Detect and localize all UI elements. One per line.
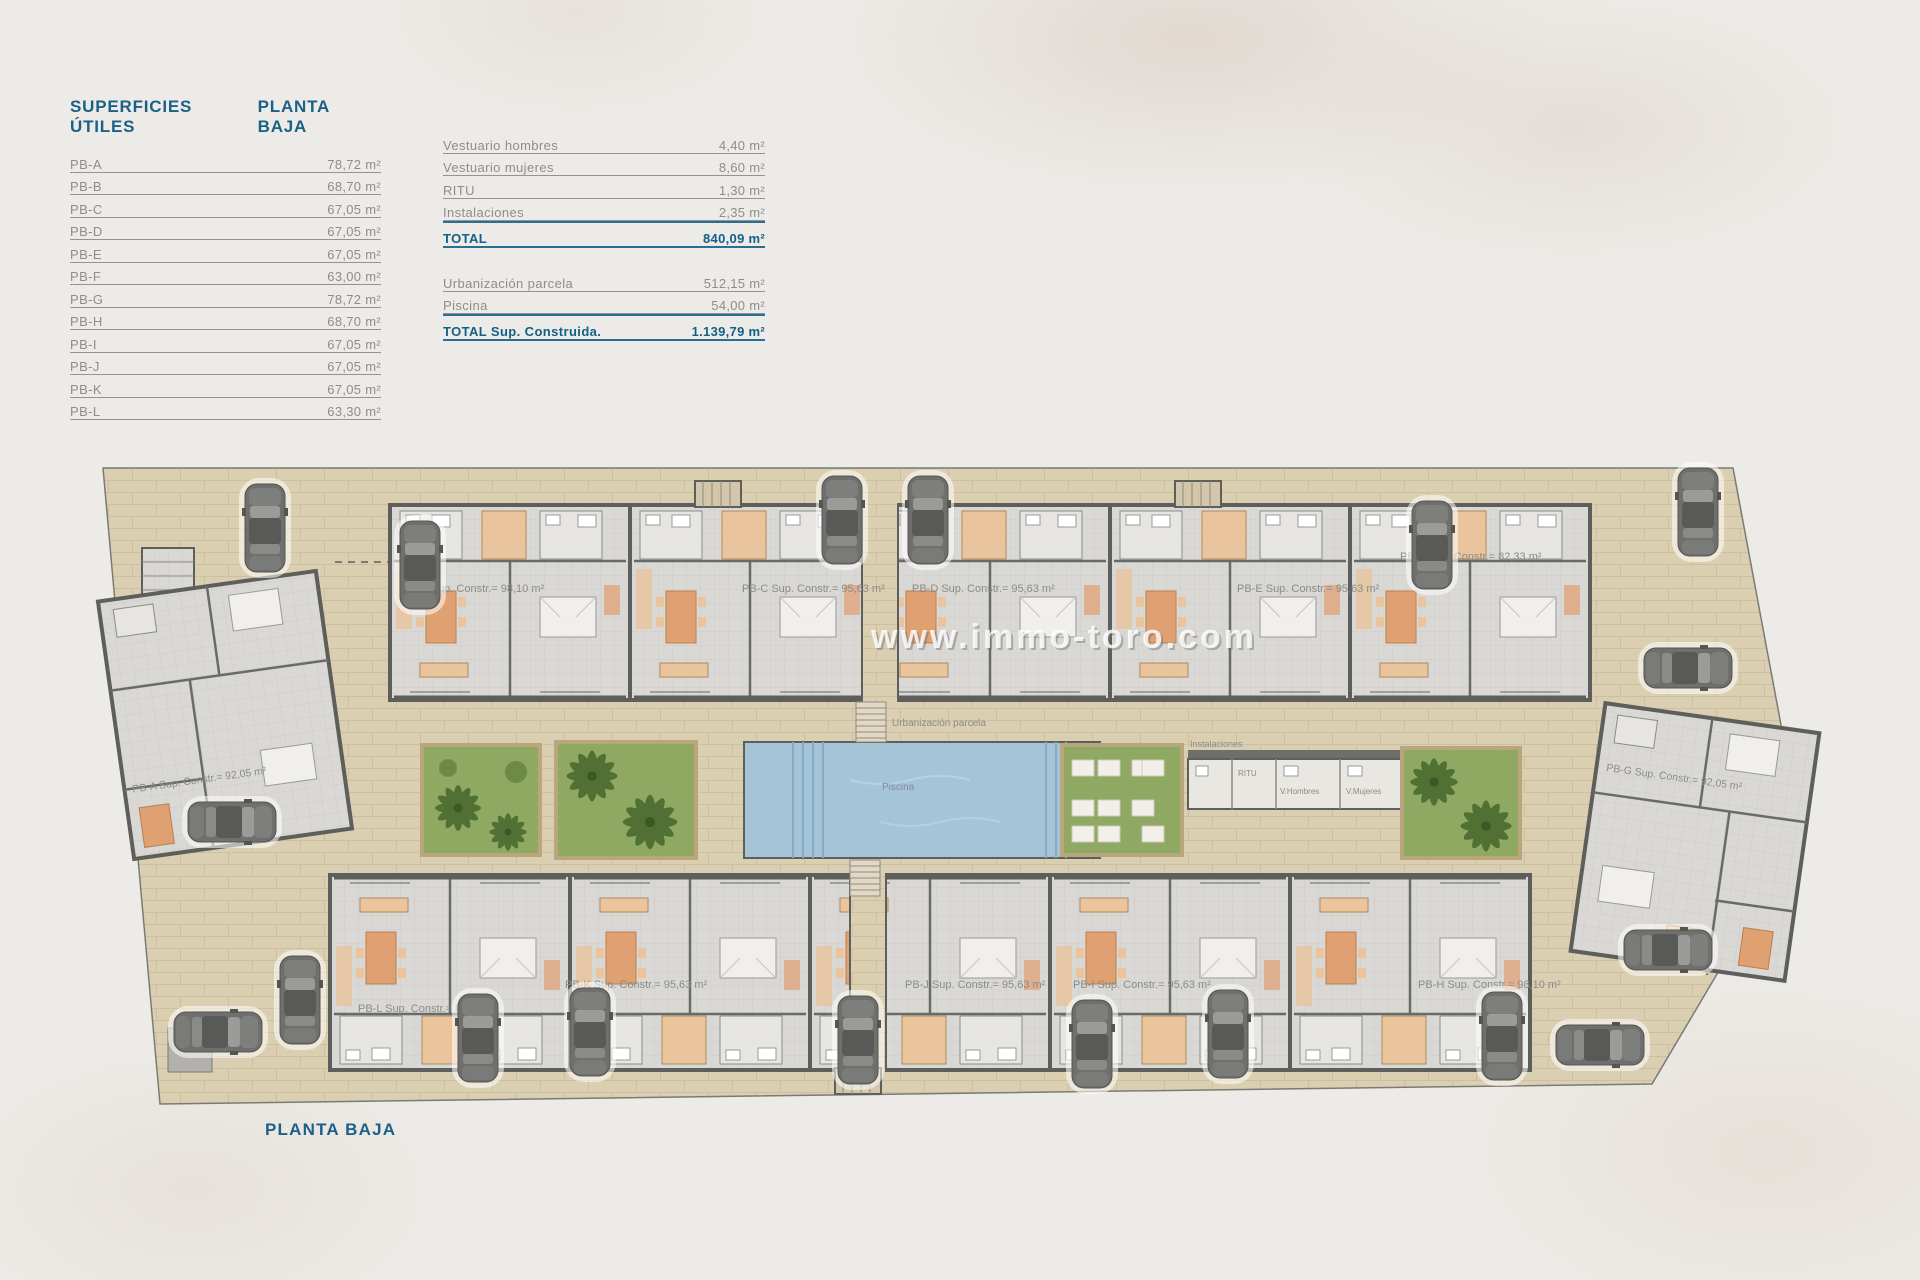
pergola xyxy=(1062,745,1182,855)
unit-label-pb-d: PB-D Sup. Constr.= 95,63 m² xyxy=(912,583,1055,595)
lawn-1 xyxy=(422,745,540,855)
car xyxy=(274,950,326,1050)
pool-label: Piscina xyxy=(882,782,915,793)
lawn-4 xyxy=(1402,748,1520,858)
unit-label-pb-e: PB-E Sup. Constr.= 95,63 m² xyxy=(1237,583,1379,595)
car xyxy=(832,990,884,1090)
pool: Piscina xyxy=(744,742,1100,858)
surfaces-subtitle: PLANTA BAJA xyxy=(258,97,381,137)
surfaces-table: SUPERFICIES ÚTILES PLANTA BAJA PB-A78,72… xyxy=(70,97,381,420)
summary-total-row: TOTAL Sup. Construida.1.139,79 m² xyxy=(443,314,765,341)
vestuario-hombres-label: V.Hombres xyxy=(1280,787,1319,796)
car xyxy=(902,470,954,570)
summary-row: Vestuario hombres4,40 m² xyxy=(443,131,765,154)
watermark: www.immo-toro.com xyxy=(870,618,1257,656)
car xyxy=(1638,642,1738,694)
surface-row: PB-F63,00 m² xyxy=(70,263,381,286)
vestuario-mujeres-label: V.Mujeres xyxy=(1346,787,1381,796)
car xyxy=(182,796,282,848)
car xyxy=(1202,984,1254,1084)
summary-table: Vestuario hombres4,40 m² Vestuario mujer… xyxy=(443,131,765,341)
car xyxy=(452,988,504,1088)
surface-row: PB-I67,05 m² xyxy=(70,330,381,353)
unit-label-pb-i: PB-I Sup. Constr.= 95,63 m² xyxy=(1073,979,1211,991)
surface-row: PB-D67,05 m² xyxy=(70,218,381,241)
surface-row: PB-H68,70 m² xyxy=(70,308,381,331)
unit-label-pb-c: PB-C Sup. Constr.= 95,63 m² xyxy=(742,583,885,595)
summary-row: Instalaciones2,35 m² xyxy=(443,199,765,222)
car xyxy=(1672,462,1724,562)
surface-row: PB-K67,05 m² xyxy=(70,375,381,398)
car xyxy=(1550,1019,1650,1071)
car xyxy=(1618,924,1718,976)
car xyxy=(1066,994,1118,1094)
lawn-2 xyxy=(556,742,696,858)
surface-row: PB-B68,70 m² xyxy=(70,173,381,196)
summary-row: RITU1,30 m² xyxy=(443,176,765,199)
surface-row: PB-C67,05 m² xyxy=(70,195,381,218)
surface-row: PB-L63,30 m² xyxy=(70,398,381,421)
surfaces-title: SUPERFICIES ÚTILES xyxy=(70,97,258,137)
car xyxy=(1476,986,1528,1086)
summary-row: Vestuario mujeres8,60 m² xyxy=(443,154,765,177)
ritu-label: RITU xyxy=(1238,769,1257,778)
urbanizacion-label: Urbanización parcela xyxy=(892,718,986,729)
instalaciones-label: Instalaciones xyxy=(1190,739,1243,749)
unit-label-pb-j: PB-J Sup. Constr.= 95,63 m² xyxy=(905,979,1046,991)
surface-row: PB-J67,05 m² xyxy=(70,353,381,376)
car xyxy=(239,478,291,578)
page: PB-A Sup. Constr.= 92,05 m² PB-G Sup. Co… xyxy=(0,0,1920,1280)
floor-label: PLANTA BAJA xyxy=(265,1120,396,1140)
surface-row: PB-A78,72 m² xyxy=(70,150,381,173)
car xyxy=(564,982,616,1082)
car xyxy=(1406,495,1458,595)
surface-row: PB-G78,72 m² xyxy=(70,285,381,308)
car xyxy=(394,515,446,615)
summary-row: Urbanización parcela512,15 m² xyxy=(443,269,765,292)
summary-total-row: TOTAL840,09 m² xyxy=(443,221,765,248)
car xyxy=(816,470,868,570)
summary-row: Piscina54,00 m² xyxy=(443,292,765,315)
surface-row: PB-E67,05 m² xyxy=(70,240,381,263)
car xyxy=(168,1006,268,1058)
